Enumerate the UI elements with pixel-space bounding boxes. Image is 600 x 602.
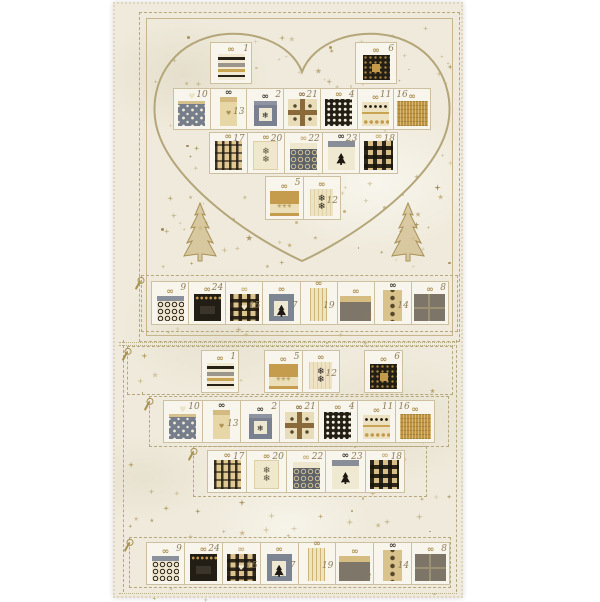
heart-bottom-pair: ∞✳✳✳5∞❄❄12 (265, 176, 341, 220)
ribbon-bow-icon: ∞ (381, 452, 389, 460)
gift-block-18: ∞18 (359, 132, 398, 174)
star-sparkle-icon (128, 462, 134, 468)
ribbon-bow-icon: ∞ (342, 452, 350, 460)
gift-4-black-white-grid: ∞ (324, 412, 351, 439)
star-sparkle-icon (447, 494, 452, 499)
gift-block-20: ∞❄❄20 (247, 132, 286, 174)
gift-number: 8 (440, 283, 446, 293)
star-sparkle-icon (416, 513, 424, 521)
gift-5-gold-snowflake-band: ∞✳✳✳ (270, 191, 299, 216)
gift-number: 6 (388, 44, 394, 54)
gift-block-21: ∞21 (283, 88, 321, 130)
gift-number: 2 (271, 402, 277, 412)
gift-22-dark-swirls-cream-lid: ∞ (293, 462, 320, 489)
heart-top-right: ∞6 (355, 42, 397, 84)
star-sparkle-icon (346, 519, 353, 526)
ribbon-bow-icon: ∞ (389, 282, 397, 290)
tree-icon (340, 472, 351, 484)
row-a-block-3: ∞6 (364, 350, 403, 393)
gift-block-13: ∞♥13 (210, 88, 248, 130)
gift-number: 14 (398, 561, 409, 571)
gift-21-cream-ribbon-cross-snow: ∞ (285, 412, 314, 439)
star-sparkle-icon (433, 494, 440, 501)
gift-block-13: ∞♥13 (202, 400, 242, 443)
gift-2-slate-label-snowflake: ∞❄ (254, 101, 277, 126)
gift-20-cream-two-dark-snowflakes: ∞❄❄ (254, 460, 279, 489)
heart-top-left: ∞1 (210, 42, 252, 84)
gift-number: 24 (208, 544, 219, 554)
edge-stitch-left (123, 340, 124, 592)
star-sparkle-icon (134, 516, 139, 521)
gift-block-8: ∞8 (411, 542, 450, 585)
gift-number: 18 (391, 452, 402, 462)
gift-number: 6 (394, 352, 400, 362)
ribbon-bow-icon: ♥ (188, 93, 195, 101)
gift-block-14: ∞14 (373, 542, 412, 585)
gift-16-gold-weave: ∞ (397, 101, 428, 126)
gift-block-5: ∞✳✳✳5 (265, 176, 304, 220)
heart-row2: ♥10∞♥13∞❄2∞21∞4∞11∞16 (173, 88, 431, 130)
ribbon-bow-icon: ♥ (179, 406, 186, 414)
ribbon-bow-icon: ∞ (218, 402, 226, 410)
star-sparkle-icon (150, 518, 154, 522)
gift-block-12: ∞❄❄12 (302, 350, 341, 393)
gift-block-9: ∞9 (146, 542, 185, 585)
gift-block-19: ∞19 (300, 281, 338, 325)
gift-number: 9 (180, 283, 186, 293)
ribbon-bow-icon: ∞ (380, 356, 388, 364)
gift-block-4: ∞4 (320, 88, 358, 130)
gift-number: 11 (380, 90, 391, 100)
row-d: ∞9∞24∞♥15∞7∞19∞3∞14∞8 (146, 542, 450, 585)
ribbon-bow-icon: ∞ (295, 404, 303, 412)
ribbon-bow-icon: ∞ (411, 406, 419, 414)
gift-number: 16 (396, 90, 407, 100)
heart-gold-icon: ♥ (226, 110, 231, 118)
gift-24-black-gold-dot-lid: ∞ (190, 554, 217, 581)
gift-23-cream-slate-lid-tree: ∞ (328, 141, 355, 170)
ribbon-bow-icon: ∞ (300, 135, 308, 143)
gift-11-cream-dot-rows: ∞ (363, 415, 390, 439)
gift-number: 3 (366, 313, 372, 323)
star-sparkle-icon (163, 505, 169, 511)
ribbon-bow-icon: ∞ (334, 404, 342, 412)
snowflake-black-icon: ❄ (262, 112, 269, 120)
gift-block-14: ∞14 (374, 281, 412, 325)
gift-21-cream-ribbon-cross-snow: ∞ (288, 99, 317, 126)
fabric-panel: ∞1∞6♥10∞♥13∞❄2∞21∞4∞11∞16∞17∞❄❄20∞22∞23∞… (113, 2, 463, 598)
gift-number: 13 (227, 419, 238, 429)
gift-block-2: ∞❄2 (240, 400, 280, 443)
ribbon-bow-icon: ∞ (373, 407, 381, 415)
ribbon-bow-icon: ∞ (166, 288, 174, 296)
gift-number: 4 (349, 402, 355, 412)
gift-6-black-gold-dots-square: ∞ (363, 55, 390, 80)
gift-18-buffalo-check: ∞ (364, 141, 393, 170)
ribbon-bow-icon: ∞ (318, 181, 326, 189)
gift-4-black-white-grid: ∞ (325, 99, 352, 126)
heart-gold-icon: ♥ (219, 423, 224, 431)
row-a-block-1: ∞1 (201, 350, 239, 393)
gift-number: 23 (346, 134, 357, 144)
tree-icon (274, 565, 285, 577)
star-sparkle-icon (375, 523, 381, 529)
gift-block-16: ∞16 (395, 400, 435, 443)
gift-number: 23 (351, 452, 362, 462)
gift-block-4: ∞4 (318, 400, 358, 443)
ribbon-bow-icon: ∞ (281, 183, 289, 191)
gift-number: 3 (366, 573, 372, 583)
gift-11-cream-dot-rows: ∞ (362, 102, 389, 126)
heart-row3: ∞17∞❄❄20∞22∞23∞18 (209, 132, 398, 174)
ribbon-bow-icon: ∞ (223, 452, 231, 460)
gift-number: 18 (384, 134, 395, 144)
gift-6-black-gold-dots-square: ∞ (370, 364, 397, 389)
gift-block-15: ∞♥15 (225, 281, 263, 325)
ribbon-bow-icon: ∞ (262, 134, 270, 142)
star-sparkle-icon (128, 524, 132, 528)
gift-24-black-gold-dot-lid: ∞ (194, 294, 221, 321)
gift-number: 15 (249, 301, 260, 311)
snowflake-gold-3-icon: ✳✳✳ (276, 376, 291, 384)
gift-8-taupe-ribbon-cross: ∞ (415, 554, 446, 581)
gift-block-22: ∞22 (286, 450, 326, 493)
gift-number: 9 (176, 544, 182, 554)
gift-number: 10 (196, 90, 207, 100)
gift-block-5: ∞✳✳✳5 (264, 350, 303, 393)
gift-number: 15 (246, 561, 257, 571)
gift-block-24: ∞24 (188, 281, 226, 325)
ribbon-bow-icon: ∞ (275, 546, 283, 554)
gift-17-tan-black-tartan: ∞ (215, 141, 242, 170)
gift-1-cream-zigzag-bands: ∞ (207, 363, 234, 389)
star-sparkle-icon (195, 508, 201, 514)
gift-number: 8 (441, 544, 447, 554)
gift-block-15: ∞♥15 (222, 542, 261, 585)
ribbon-bow-icon: ∞ (203, 286, 211, 294)
gift-number: 2 (275, 90, 281, 100)
gift-1-cream-zigzag-bands: ∞ (218, 54, 245, 80)
star-sparkle-icon (148, 489, 154, 495)
ribbon-bow-icon: ∞ (313, 540, 321, 548)
gift-number: 20 (272, 452, 283, 462)
gift-block-23: ∞23 (325, 450, 365, 493)
gift-block-11: ∞11 (357, 88, 395, 130)
row-a-block-2: ∞✳✳✳5∞❄❄12 (264, 350, 340, 393)
ribbon-bow-icon: ∞ (216, 355, 224, 363)
gift-number: 22 (312, 452, 323, 462)
star-sparkle-icon (222, 529, 227, 534)
gift-7-slate-tree-label: ∞ (269, 294, 294, 321)
gift-block-21: ∞21 (279, 400, 319, 443)
gift-number: 7 (292, 301, 298, 311)
gift-8-taupe-ribbon-cross: ∞ (414, 294, 445, 321)
gift-number: 1 (243, 44, 249, 54)
gift-block-7: ∞7 (262, 281, 300, 325)
gift-18-buffalo-check: ∞ (370, 460, 399, 489)
gift-number: 12 (326, 369, 337, 379)
star-sparkle-icon (384, 519, 391, 526)
gift-10-slate-white-stars: ♥ (169, 414, 196, 439)
star-sparkle-icon (351, 510, 353, 512)
row-b: ♥10∞♥13∞❄2∞21∞4∞11∞16 (163, 400, 435, 443)
row-c: ∞17∞❄❄20∞22∞23∞18 (207, 450, 405, 493)
gift-number: 13 (233, 107, 244, 117)
ribbon-bow-icon: ∞ (262, 93, 270, 101)
gift-number: 19 (323, 301, 334, 311)
ribbon-bow-icon: ∞ (427, 546, 435, 554)
gift-number: 4 (349, 90, 355, 100)
star-sparkle-icon (318, 514, 324, 520)
star-sparkle-icon (262, 526, 270, 534)
gift-block-6: ∞6 (364, 350, 403, 393)
star-sparkle-icon (239, 530, 245, 536)
ribbon-bow-icon: ∞ (317, 354, 325, 362)
gift-block-6: ∞6 (355, 42, 397, 84)
snowflake-dark-2-icon: ❄❄ (261, 467, 273, 483)
ribbon-bow-icon: ∞ (372, 94, 380, 102)
ribbon-bow-icon: ∞ (351, 548, 359, 556)
ribbon-bow-icon: ∞ (337, 133, 345, 141)
gift-block-17: ∞17 (207, 450, 247, 493)
ribbon-bow-icon: ∞ (426, 286, 434, 294)
gift-block-3: ∞3 (335, 542, 374, 585)
ribbon-bow-icon: ∞ (237, 546, 245, 554)
christmas-tree-icon (387, 200, 429, 264)
gift-number: 22 (308, 134, 319, 144)
gift-block-1: ∞1 (210, 42, 252, 84)
gift-block-7: ∞7 (260, 542, 299, 585)
gift-block-16: ∞16 (393, 88, 431, 130)
ribbon-bow-icon: ∞ (227, 46, 235, 54)
gift-number: 17 (233, 452, 244, 462)
gift-number: 5 (294, 352, 300, 362)
gift-block-8: ∞8 (411, 281, 449, 325)
ribbon-bow-icon: ∞ (263, 453, 271, 461)
gift-16-gold-weave: ∞ (400, 414, 431, 439)
snowflake-gold-3-icon: ✳✳✳ (277, 203, 292, 211)
gift-block-20: ∞❄❄20 (246, 450, 286, 493)
gift-number: 5 (295, 178, 301, 188)
ribbon-bow-icon: ∞ (241, 286, 249, 294)
gift-number: 20 (271, 134, 282, 144)
gift-block-10: ♥10 (173, 88, 211, 130)
gift-number: 14 (397, 301, 408, 311)
gift-10-slate-white-stars: ♥ (178, 101, 205, 126)
star-sparkle-icon (291, 525, 298, 532)
gift-7-slate-tree-label: ∞ (267, 554, 292, 581)
gift-number: 1 (230, 352, 236, 362)
gift-block-22: ∞22 (284, 132, 323, 174)
gift-number: 10 (188, 402, 199, 412)
perforation-line (119, 593, 457, 594)
perforation-line (119, 342, 457, 343)
snowflake-dark-2-icon: ❄❄ (260, 148, 272, 164)
star-sparkle-icon (174, 490, 180, 496)
gift-number: 19 (322, 561, 333, 571)
ribbon-bow-icon: ∞ (225, 89, 233, 97)
ribbon-bow-icon: ∞ (389, 542, 397, 550)
gift-number: 7 (290, 561, 296, 571)
ribbon-bow-icon: ∞ (335, 91, 343, 99)
ribbon-bow-icon: ∞ (375, 133, 383, 141)
gift-block-1: ∞1 (201, 350, 239, 393)
gift-number: 24 (212, 283, 223, 293)
gift-2-slate-label-snowflake: ∞❄ (249, 414, 272, 439)
ribbon-bow-icon: ∞ (315, 280, 323, 288)
star-sparkle-icon (238, 499, 245, 506)
heart-cream-icon: ♥ (238, 564, 244, 572)
ribbon-bow-icon: ∞ (372, 47, 380, 55)
gift-block-17: ∞17 (209, 132, 248, 174)
ribbon-bow-icon: ∞ (298, 91, 306, 99)
gift-22-dark-swirls-cream-lid: ∞ (290, 143, 317, 170)
gift-23-cream-slate-lid-tree: ∞ (332, 460, 359, 489)
gift-number: 21 (304, 402, 315, 412)
christmas-tree-icon (179, 200, 221, 264)
gift-block-3: ∞3 (337, 281, 375, 325)
gift-20-cream-two-dark-snowflakes: ∞❄❄ (253, 141, 278, 170)
star-sparkle-icon (362, 497, 364, 499)
ribbon-bow-icon: ∞ (408, 93, 416, 101)
star-sparkle-icon (420, 497, 425, 502)
ribbon-bow-icon: ∞ (162, 548, 170, 556)
gift-number: 17 (233, 134, 244, 144)
gift-number: 11 (382, 402, 393, 412)
gift-number: 16 (398, 402, 409, 412)
ribbon-bow-icon: ∞ (352, 288, 360, 296)
tree-icon (336, 153, 347, 165)
gift-block-24: ∞24 (184, 542, 223, 585)
ribbon-bow-icon: ∞ (280, 356, 288, 364)
gift-block-10: ♥10 (163, 400, 203, 443)
ribbon-bow-icon: ∞ (200, 546, 208, 554)
cutting-strip: ∞9∞24∞♥15∞7∞19∞3∞14∞8 (151, 281, 449, 325)
gift-number: 21 (306, 90, 317, 100)
gift-9-cream-swirls-slate-lid: ∞ (152, 556, 179, 581)
ribbon-bow-icon: ∞ (302, 454, 310, 462)
gift-block-23: ∞23 (322, 132, 361, 174)
gift-block-19: ∞19 (298, 542, 337, 585)
gift-block-12: ∞❄❄12 (303, 176, 342, 220)
gift-5-gold-snowflake-band: ∞✳✳✳ (269, 364, 298, 389)
edge-stitch-right (456, 340, 457, 592)
gift-17-tan-black-tartan: ∞ (214, 460, 241, 489)
tree-icon (276, 305, 287, 317)
gift-block-9: ∞9 (151, 281, 189, 325)
ribbon-bow-icon: ∞ (278, 286, 286, 294)
ribbon-bow-icon: ∞ (225, 133, 233, 141)
ribbon-bow-icon: ∞ (257, 406, 265, 414)
gift-number: 12 (327, 196, 338, 206)
gift-block-18: ∞18 (365, 450, 405, 493)
star-sparkle-icon (268, 512, 275, 519)
gift-9-cream-swirls-slate-lid: ∞ (157, 296, 184, 321)
heart-cream-icon: ♥ (241, 304, 247, 312)
star-sparkle-icon (429, 531, 431, 533)
snowflake-black-icon: ❄ (257, 425, 264, 433)
gift-block-11: ∞11 (357, 400, 397, 443)
gift-block-2: ∞❄2 (246, 88, 284, 130)
